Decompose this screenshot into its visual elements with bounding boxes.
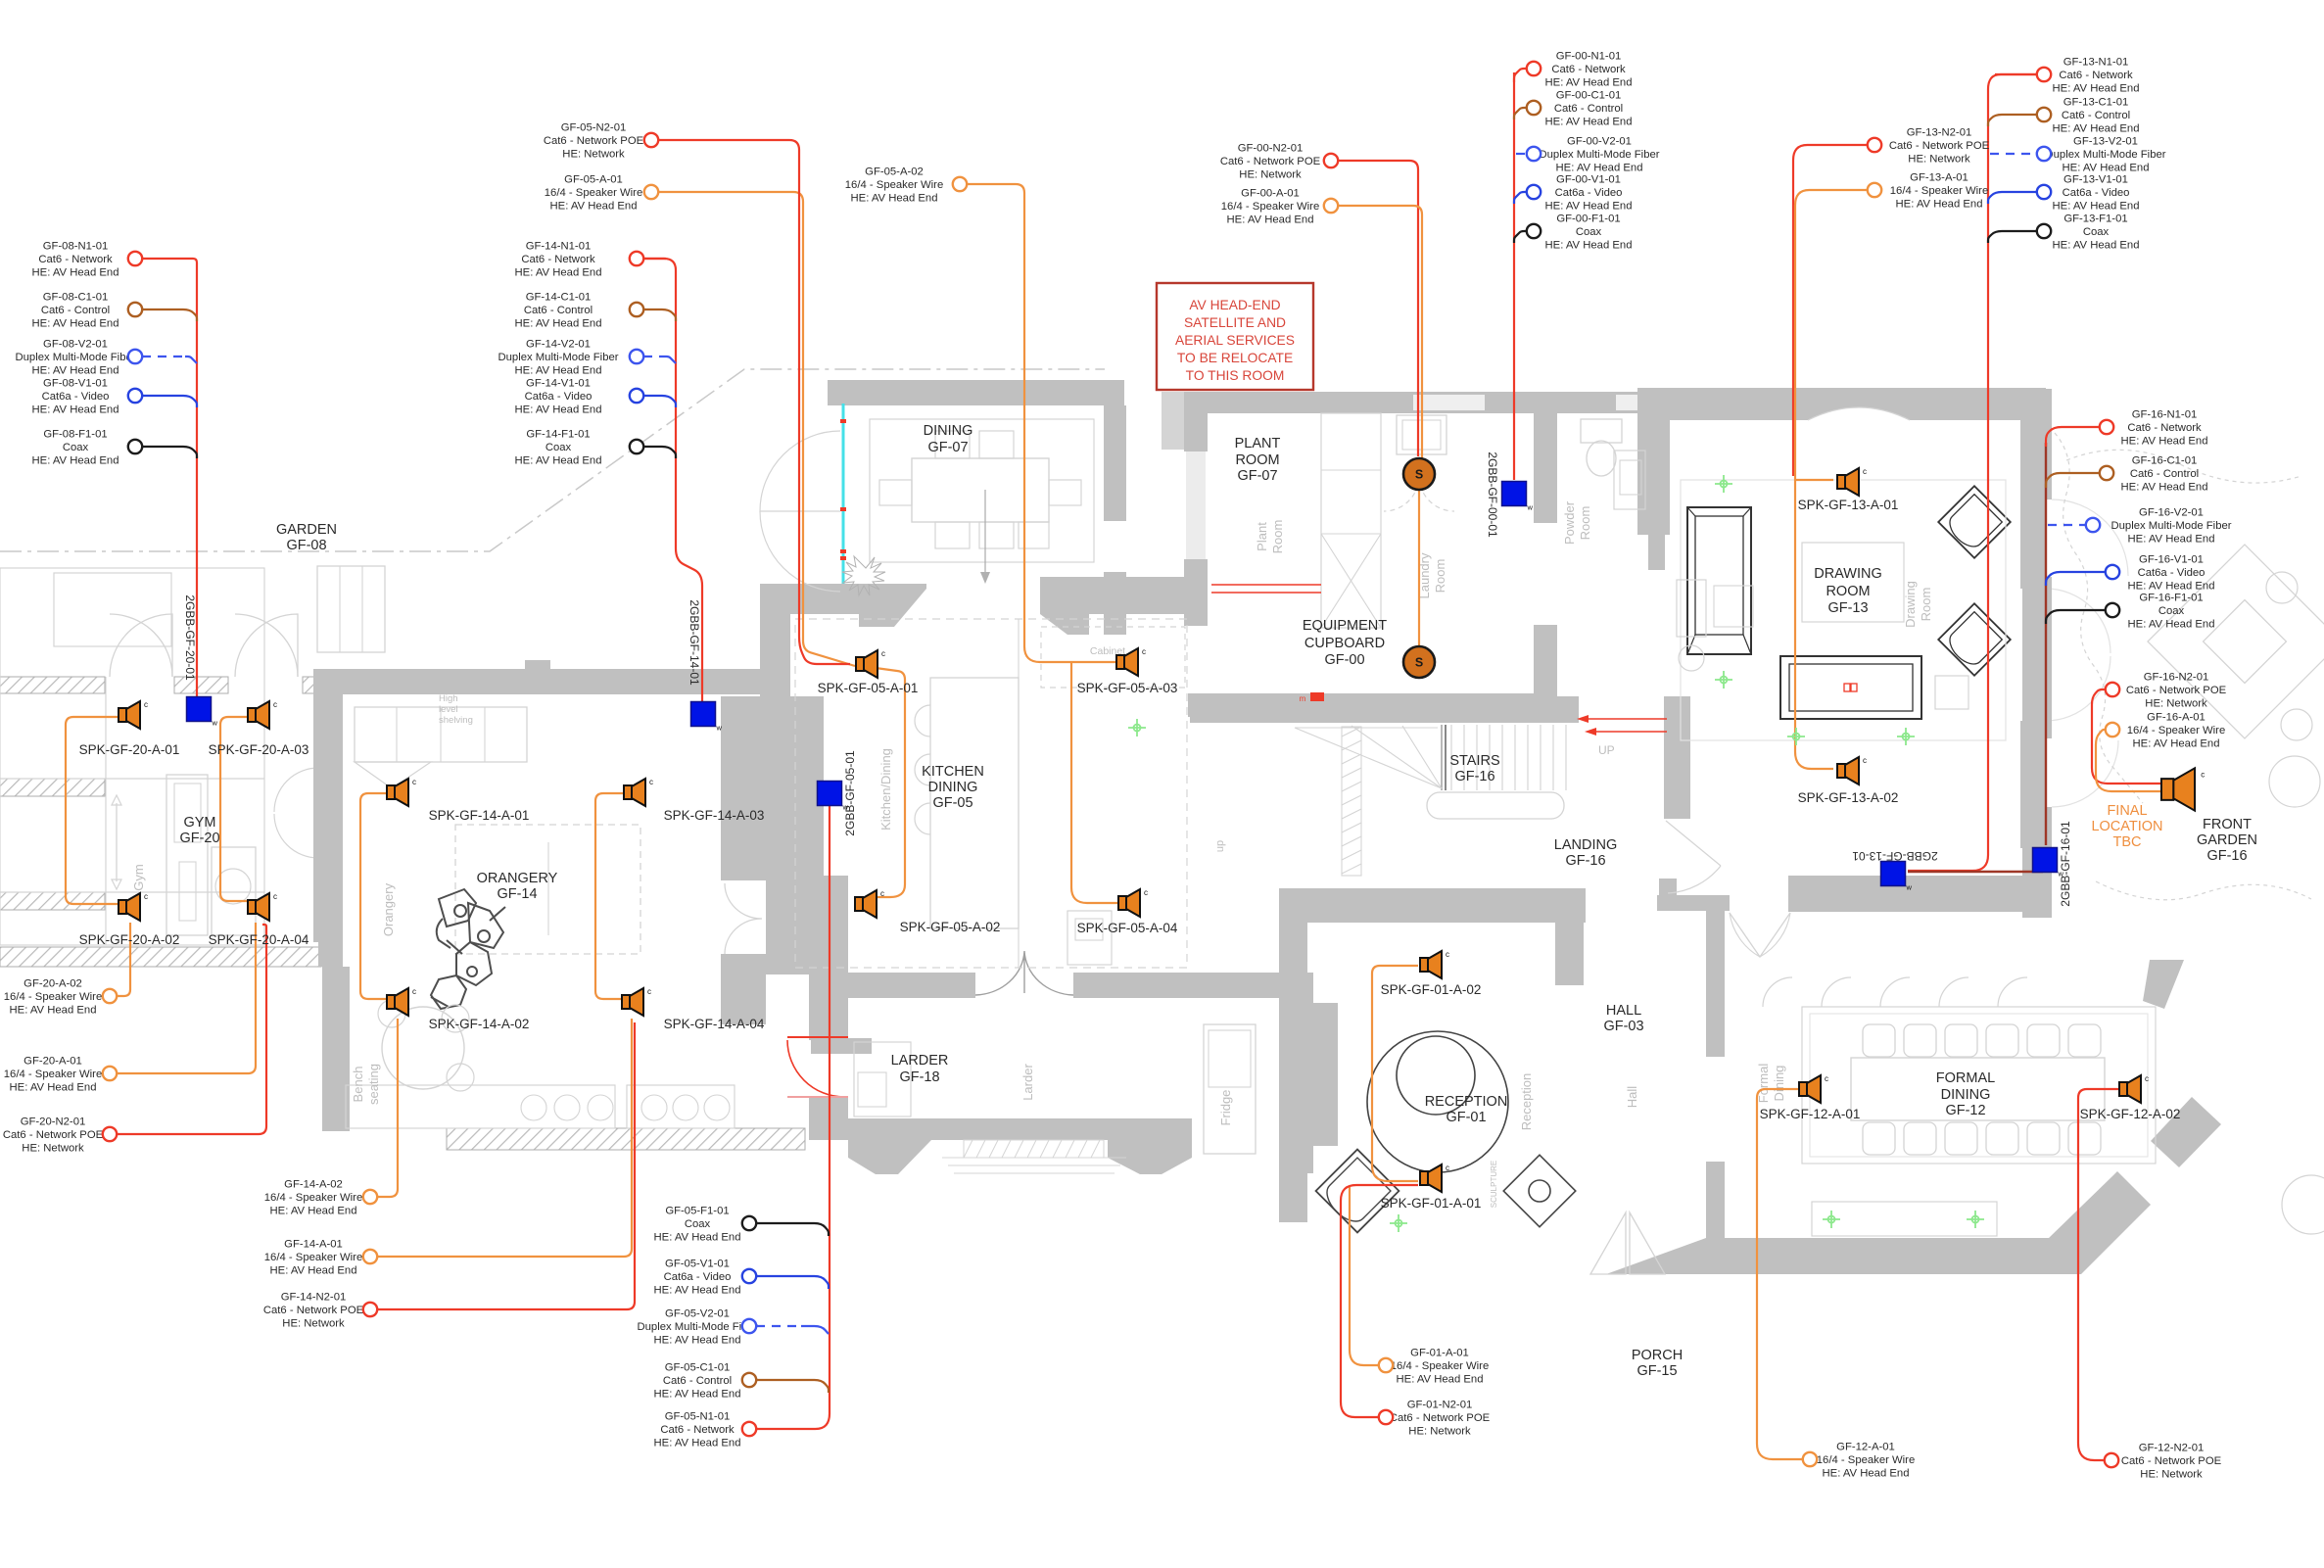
svg-text:GF-05-A-02: GF-05-A-02 — [865, 166, 924, 178]
svg-text:HE: Network: HE: Network — [2140, 1468, 2203, 1480]
svg-text:DRAWING: DRAWING — [1814, 566, 1882, 582]
svg-text:Cat6 - Control: Cat6 - Control — [524, 305, 593, 316]
svg-text:w: w — [1906, 883, 1913, 892]
svg-text:Cat6 - Network POE: Cat6 - Network POE — [1390, 1412, 1491, 1424]
svg-text:GF-16-N2-01: GF-16-N2-01 — [2144, 672, 2209, 684]
svg-text:HE: AV Head End: HE: AV Head End — [2053, 82, 2140, 94]
svg-text:Room: Room — [1578, 506, 1592, 541]
svg-text:Cat6 - Control: Cat6 - Control — [2062, 110, 2130, 121]
svg-text:GF-08-V2-01: GF-08-V2-01 — [43, 339, 108, 351]
svg-text:Cat6 - Network POE: Cat6 - Network POE — [1889, 140, 1990, 152]
svg-text:2GBB-GF-13-01: 2GBB-GF-13-01 — [1852, 849, 1938, 863]
svg-text:shelving: shelving — [439, 715, 473, 726]
svg-text:GF-15: GF-15 — [1636, 1363, 1677, 1379]
svg-text:2GBB-GF-00-01: 2GBB-GF-00-01 — [1486, 451, 1499, 538]
svg-text:c: c — [412, 987, 416, 996]
svg-text:Orangery: Orangery — [381, 882, 396, 936]
svg-text:Coax: Coax — [545, 442, 572, 453]
svg-text:EQUIPMENT: EQUIPMENT — [1303, 618, 1387, 634]
svg-text:GF-12-A-01: GF-12-A-01 — [1836, 1442, 1895, 1453]
svg-text:GF-16: GF-16 — [2206, 848, 2247, 864]
svg-text:Cat6a - Video: Cat6a - Video — [525, 391, 593, 403]
svg-text:HE: AV Head End: HE: AV Head End — [1545, 200, 1633, 212]
svg-text:HE: AV Head End: HE: AV Head End — [851, 192, 938, 204]
svg-text:Hall: Hall — [1625, 1086, 1639, 1109]
svg-text:GYM: GYM — [183, 815, 215, 831]
svg-text:GF-20: GF-20 — [179, 831, 219, 846]
svg-text:16/4 - Speaker Wire: 16/4 - Speaker Wire — [845, 179, 943, 191]
svg-text:HE: AV Head End: HE: AV Head End — [550, 200, 638, 212]
svg-text:HE: AV Head End: HE: AV Head End — [10, 1081, 97, 1093]
svg-text:HE: AV Head End: HE: AV Head End — [2053, 239, 2140, 251]
svg-text:c: c — [1446, 950, 1449, 959]
svg-text:ROOM: ROOM — [1235, 452, 1279, 468]
svg-text:Powder: Powder — [1562, 500, 1577, 545]
svg-text:m: m — [1300, 694, 1306, 703]
svg-text:Cat6 - Network: Cat6 - Network — [2059, 70, 2133, 81]
svg-text:HALL: HALL — [1606, 1003, 1641, 1019]
svg-text:HE: AV Head End: HE: AV Head End — [2128, 618, 2215, 630]
svg-text:DINING: DINING — [928, 780, 978, 795]
svg-text:Cat6 - Network POE: Cat6 - Network POE — [544, 135, 644, 147]
svg-text:c: c — [1446, 1164, 1449, 1172]
svg-text:TO BE RELOCATE: TO BE RELOCATE — [1177, 351, 1293, 365]
svg-text:c: c — [2201, 771, 2205, 780]
svg-text:HE: AV Head End: HE: AV Head End — [515, 317, 602, 329]
svg-text:GF-14-N2-01: GF-14-N2-01 — [281, 1292, 347, 1304]
svg-text:Cat6 - Network: Cat6 - Network — [521, 254, 595, 265]
svg-text:up: up — [1214, 840, 1226, 852]
svg-text:GF-08-F1-01: GF-08-F1-01 — [43, 429, 107, 441]
svg-text:SPK-GF-12-A-02: SPK-GF-12-A-02 — [2080, 1107, 2181, 1121]
svg-text:c: c — [880, 889, 884, 898]
svg-text:SPK-GF-05-A-01: SPK-GF-05-A-01 — [818, 681, 919, 695]
svg-text:GF-20-A-01: GF-20-A-01 — [24, 1056, 82, 1068]
svg-text:16/4 - Speaker Wire: 16/4 - Speaker Wire — [1391, 1360, 1489, 1372]
svg-text:SPK-GF-14-A-02: SPK-GF-14-A-02 — [429, 1017, 530, 1031]
svg-text:HE: AV Head End: HE: AV Head End — [32, 364, 119, 376]
svg-text:HE: AV Head End: HE: AV Head End — [515, 364, 602, 376]
svg-text:GF-16-V1-01: GF-16-V1-01 — [2139, 554, 2204, 566]
svg-text:Cat6 - Network POE: Cat6 - Network POE — [2126, 685, 2227, 696]
svg-text:GF-20-N2-01: GF-20-N2-01 — [21, 1117, 86, 1128]
svg-text:GF-00: GF-00 — [1324, 652, 1364, 668]
svg-text:c: c — [1142, 647, 1146, 656]
svg-text:GF-14-V2-01: GF-14-V2-01 — [526, 339, 591, 351]
svg-text:c: c — [1144, 888, 1148, 897]
svg-text:GF-14-N1-01: GF-14-N1-01 — [526, 241, 592, 253]
svg-text:HE: AV Head End: HE: AV Head End — [1556, 162, 1643, 173]
svg-text:SPK-GF-20-A-04: SPK-GF-20-A-04 — [209, 932, 309, 947]
svg-text:DINING: DINING — [924, 423, 973, 439]
svg-text:c: c — [1825, 1074, 1828, 1083]
svg-text:16/4 - Speaker Wire: 16/4 - Speaker Wire — [4, 991, 102, 1003]
svg-text:GF-16: GF-16 — [1565, 853, 1605, 869]
svg-text:GF-05: GF-05 — [932, 795, 972, 811]
svg-text:GF-13: GF-13 — [1827, 600, 1868, 616]
svg-text:GF-05-A-01: GF-05-A-01 — [564, 174, 623, 186]
svg-text:SPK-GF-12-A-01: SPK-GF-12-A-01 — [1760, 1107, 1861, 1121]
svg-text:Cat6a - Video: Cat6a - Video — [2138, 567, 2205, 579]
svg-text:c: c — [144, 700, 148, 709]
svg-text:PORCH: PORCH — [1632, 1348, 1683, 1363]
svg-text:GF-16-C1-01: GF-16-C1-01 — [2132, 455, 2198, 467]
svg-text:GF-14-A-01: GF-14-A-01 — [284, 1239, 343, 1251]
svg-text:SPK-GF-20-A-01: SPK-GF-20-A-01 — [79, 742, 180, 757]
svg-text:Kitchen/Dining: Kitchen/Dining — [878, 748, 893, 831]
svg-text:2GBB-GF-20-01: 2GBB-GF-20-01 — [183, 594, 197, 681]
svg-text:GF-14-A-02: GF-14-A-02 — [284, 1179, 343, 1191]
svg-text:Coax: Coax — [2158, 605, 2185, 617]
svg-text:HE: AV Head End: HE: AV Head End — [1545, 76, 1633, 88]
svg-text:GF-13-N2-01: GF-13-N2-01 — [1907, 127, 1972, 139]
svg-text:HE: AV Head End: HE: AV Head End — [32, 454, 119, 466]
svg-text:GF-18: GF-18 — [899, 1069, 939, 1085]
svg-text:GF-12-N2-01: GF-12-N2-01 — [2139, 1443, 2205, 1454]
svg-text:16/4 - Speaker Wire: 16/4 - Speaker Wire — [1890, 185, 1988, 197]
svg-text:w: w — [716, 724, 723, 733]
svg-text:SPK-GF-14-A-03: SPK-GF-14-A-03 — [664, 808, 765, 823]
svg-text:FORMAL: FORMAL — [1936, 1070, 1995, 1086]
svg-text:GF-01-N2-01: GF-01-N2-01 — [1407, 1400, 1473, 1411]
svg-text:High: High — [439, 693, 458, 704]
svg-text:GF-16-V2-01: GF-16-V2-01 — [2139, 507, 2204, 519]
svg-text:HE: Network: HE: Network — [1408, 1425, 1471, 1437]
svg-text:c: c — [273, 892, 277, 901]
svg-text:AERIAL SERVICES: AERIAL SERVICES — [1175, 333, 1295, 348]
svg-text:Drawing: Drawing — [1903, 581, 1918, 628]
svg-text:2GBB-GF-14-01: 2GBB-GF-14-01 — [688, 599, 701, 686]
svg-text:Larder: Larder — [1020, 1064, 1035, 1101]
svg-text:GF-08-V1-01: GF-08-V1-01 — [43, 378, 108, 390]
svg-text:GF-00-F1-01: GF-00-F1-01 — [1556, 214, 1620, 225]
svg-text:ORANGERY: ORANGERY — [477, 871, 558, 886]
svg-text:Cat6 - Control: Cat6 - Control — [1554, 103, 1623, 115]
svg-text:HE: AV Head End: HE: AV Head End — [654, 1437, 741, 1449]
svg-text:SPK-GF-20-A-02: SPK-GF-20-A-02 — [79, 932, 180, 947]
svg-text:HE: AV Head End: HE: AV Head End — [270, 1264, 357, 1276]
svg-text:c: c — [273, 700, 277, 709]
svg-text:Reception: Reception — [1519, 1073, 1534, 1131]
svg-text:Duplex Multi-Mode Fiber: Duplex Multi-Mode Fiber — [2045, 149, 2165, 161]
svg-text:LOCATION: LOCATION — [2091, 819, 2162, 834]
svg-text:PLANT: PLANT — [1235, 436, 1281, 451]
svg-text:Cat6a - Video: Cat6a - Video — [1555, 187, 1623, 199]
svg-text:GF-16: GF-16 — [1454, 769, 1494, 784]
svg-text:Coax: Coax — [685, 1218, 711, 1230]
svg-text:GARDEN: GARDEN — [2197, 832, 2257, 848]
svg-text:GF-00-C1-01: GF-00-C1-01 — [1556, 90, 1622, 102]
svg-text:GF-13-V2-01: GF-13-V2-01 — [2073, 136, 2138, 148]
svg-text:FRONT: FRONT — [2203, 817, 2252, 832]
svg-text:AV HEAD-END: AV HEAD-END — [1189, 298, 1280, 312]
svg-text:GF-08-N1-01: GF-08-N1-01 — [43, 241, 109, 253]
svg-text:HE: Network: HE: Network — [282, 1317, 345, 1329]
svg-text:ROOM: ROOM — [1826, 584, 1870, 599]
svg-text:Bench: Bench — [351, 1067, 365, 1103]
svg-text:GF-05-V2-01: GF-05-V2-01 — [665, 1308, 730, 1320]
svg-text:SPK-GF-14-A-04: SPK-GF-14-A-04 — [664, 1017, 765, 1031]
svg-text:GF-13-V1-01: GF-13-V1-01 — [2063, 174, 2128, 186]
svg-text:GF-00-A-01: GF-00-A-01 — [1241, 188, 1300, 200]
svg-text:Cat6 - Network POE: Cat6 - Network POE — [3, 1129, 104, 1141]
svg-text:HE: AV Head End: HE: AV Head End — [515, 266, 602, 278]
svg-text:HE: AV Head End: HE: AV Head End — [654, 1334, 741, 1346]
svg-text:Duplex Multi-Mode Fiber: Duplex Multi-Mode Fiber — [15, 352, 135, 363]
svg-text:HE: AV Head End: HE: AV Head End — [2121, 481, 2208, 493]
svg-text:GF-08: GF-08 — [286, 538, 326, 553]
svg-text:GARDEN: GARDEN — [276, 522, 337, 538]
svg-text:HE: AV Head End: HE: AV Head End — [654, 1284, 741, 1296]
svg-text:TO THIS ROOM: TO THIS ROOM — [1186, 368, 1285, 383]
svg-text:Room: Room — [1919, 588, 1933, 622]
svg-text:16/4 - Speaker Wire: 16/4 - Speaker Wire — [2127, 725, 2225, 736]
svg-text:Cat6a - Video: Cat6a - Video — [42, 391, 110, 403]
svg-text:16/4 - Speaker Wire: 16/4 - Speaker Wire — [4, 1069, 102, 1080]
svg-text:GF-00-N1-01: GF-00-N1-01 — [1556, 51, 1622, 63]
svg-text:16/4 - Speaker Wire: 16/4 - Speaker Wire — [545, 187, 642, 199]
svg-text:CUPBOARD: CUPBOARD — [1304, 636, 1385, 651]
svg-text:Cat6a - Video: Cat6a - Video — [2063, 187, 2130, 199]
svg-text:SPK-GF-05-A-02: SPK-GF-05-A-02 — [900, 920, 1001, 934]
svg-text:HE: AV Head End: HE: AV Head End — [1545, 239, 1633, 251]
svg-text:HE: AV Head End: HE: AV Head End — [2128, 580, 2215, 592]
svg-text:2GBB-GF-16-01: 2GBB-GF-16-01 — [2059, 821, 2072, 907]
svg-text:GF-01-A-01: GF-01-A-01 — [1410, 1348, 1469, 1359]
svg-text:HE: AV Head End: HE: AV Head End — [1545, 116, 1633, 127]
svg-text:HE: AV Head End: HE: AV Head End — [270, 1205, 357, 1216]
svg-text:c: c — [649, 778, 653, 786]
svg-text:GF-01: GF-01 — [1446, 1110, 1486, 1125]
svg-text:SATELLITE AND: SATELLITE AND — [1184, 315, 1286, 330]
svg-text:Coax: Coax — [63, 442, 89, 453]
svg-text:seating: seating — [366, 1064, 381, 1105]
svg-text:GF-13-C1-01: GF-13-C1-01 — [2063, 97, 2129, 109]
svg-text:HE: Network: HE: Network — [1239, 168, 1302, 180]
svg-text:HE: AV Head End: HE: AV Head End — [2121, 435, 2208, 447]
svg-text:HE: AV Head End: HE: AV Head End — [1397, 1373, 1484, 1385]
svg-text:GF-05-C1-01: GF-05-C1-01 — [665, 1362, 731, 1374]
svg-text:HE: AV Head End: HE: AV Head End — [1823, 1467, 1910, 1479]
svg-text:HE: Network: HE: Network — [2145, 697, 2207, 709]
svg-text:Formal: Formal — [1756, 1064, 1771, 1104]
svg-text:Duplex Multi-Mode Fiber: Duplex Multi-Mode Fiber — [1539, 149, 1659, 161]
svg-text:HE: AV Head End: HE: AV Head End — [515, 454, 602, 466]
svg-text:HE: AV Head End: HE: AV Head End — [32, 266, 119, 278]
svg-text:SPK-GF-14-A-01: SPK-GF-14-A-01 — [429, 808, 530, 823]
svg-text:c: c — [647, 987, 651, 996]
svg-text:GF-20-A-02: GF-20-A-02 — [24, 978, 82, 990]
svg-text:STAIRS: STAIRS — [1449, 753, 1499, 769]
svg-text:c: c — [2145, 1074, 2149, 1083]
svg-text:HE: Network: HE: Network — [562, 148, 625, 160]
svg-text:SPK-GF-01-A-01: SPK-GF-01-A-01 — [1381, 1196, 1482, 1211]
svg-text:GF-05-N2-01: GF-05-N2-01 — [561, 122, 627, 134]
svg-text:HE: AV Head End: HE: AV Head End — [2133, 737, 2220, 749]
svg-text:c: c — [881, 649, 885, 658]
svg-text:Cat6 - Control: Cat6 - Control — [2130, 468, 2199, 480]
svg-text:GF-14-F1-01: GF-14-F1-01 — [526, 429, 590, 441]
svg-text:GF-08-C1-01: GF-08-C1-01 — [43, 292, 109, 304]
svg-text:Cat6 - Network: Cat6 - Network — [38, 254, 113, 265]
svg-text:HE: AV Head End: HE: AV Head End — [1896, 198, 1983, 210]
svg-text:2GBB-GF-05-01: 2GBB-GF-05-01 — [843, 750, 857, 836]
svg-text:Room: Room — [1270, 520, 1285, 554]
svg-text:LARDER: LARDER — [891, 1053, 949, 1069]
svg-text:HE: AV Head End: HE: AV Head End — [654, 1231, 741, 1243]
svg-text:HE: Network: HE: Network — [1908, 153, 1970, 165]
svg-text:Coax: Coax — [1576, 226, 1602, 238]
svg-text:GF-05-F1-01: GF-05-F1-01 — [665, 1206, 729, 1217]
svg-text:c: c — [1863, 756, 1867, 765]
svg-text:SPK-GF-05-A-03: SPK-GF-05-A-03 — [1077, 681, 1178, 695]
svg-text:S: S — [1415, 468, 1423, 482]
svg-text:w: w — [212, 719, 218, 728]
svg-text:Cat6 - Control: Cat6 - Control — [41, 305, 110, 316]
svg-text:Cat6a - Video: Cat6a - Video — [664, 1271, 732, 1283]
svg-text:HE: Network: HE: Network — [22, 1142, 84, 1154]
svg-text:c: c — [1863, 467, 1867, 476]
svg-text:S: S — [1415, 656, 1423, 670]
svg-text:GF-14-V1-01: GF-14-V1-01 — [526, 378, 591, 390]
svg-text:SPK-GF-13-A-02: SPK-GF-13-A-02 — [1798, 790, 1899, 805]
svg-text:Cat6 - Network: Cat6 - Network — [1551, 64, 1626, 75]
svg-text:level: level — [439, 704, 458, 715]
svg-text:16/4 - Speaker Wire: 16/4 - Speaker Wire — [264, 1192, 362, 1204]
svg-text:FINAL: FINAL — [2107, 803, 2147, 819]
svg-text:16/4 - Speaker Wire: 16/4 - Speaker Wire — [1221, 201, 1319, 213]
svg-text:HE: AV Head End: HE: AV Head End — [2063, 162, 2150, 173]
svg-text:16/4 - Speaker Wire: 16/4 - Speaker Wire — [264, 1252, 362, 1263]
svg-text:GF-03: GF-03 — [1603, 1019, 1643, 1034]
svg-text:HE: AV Head End: HE: AV Head End — [515, 404, 602, 415]
svg-text:Room: Room — [1433, 559, 1447, 594]
svg-text:Fridge: Fridge — [1218, 1090, 1233, 1126]
svg-text:GF-07: GF-07 — [927, 440, 968, 455]
svg-text:HE: AV Head End: HE: AV Head End — [2128, 533, 2215, 545]
svg-text:GF-14-C1-01: GF-14-C1-01 — [526, 292, 592, 304]
svg-text:DINING: DINING — [1941, 1087, 1991, 1103]
svg-text:GF-13-N1-01: GF-13-N1-01 — [2063, 57, 2129, 69]
svg-text:GF-05-N1-01: GF-05-N1-01 — [665, 1411, 731, 1423]
svg-text:GF-00-N2-01: GF-00-N2-01 — [1238, 143, 1304, 155]
svg-text:GF-13-A-01: GF-13-A-01 — [1910, 172, 1968, 184]
svg-text:GF-00-V1-01: GF-00-V1-01 — [1556, 174, 1621, 186]
svg-text:Cat6 - Network: Cat6 - Network — [2127, 422, 2202, 434]
svg-text:16/4 - Speaker Wire: 16/4 - Speaker Wire — [1817, 1454, 1915, 1466]
svg-text:GF-07: GF-07 — [1237, 468, 1277, 484]
svg-text:HE: AV Head End: HE: AV Head End — [10, 1004, 97, 1016]
svg-text:Cat6 - Network POE: Cat6 - Network POE — [2121, 1455, 2222, 1467]
svg-text:GF-00-V2-01: GF-00-V2-01 — [1567, 136, 1632, 148]
svg-text:HE: AV Head End: HE: AV Head End — [32, 317, 119, 329]
svg-text:KITCHEN: KITCHEN — [922, 764, 984, 780]
svg-text:Cat6 - Control: Cat6 - Control — [663, 1375, 732, 1387]
svg-text:w: w — [1527, 503, 1534, 512]
svg-text:Cat6 - Network: Cat6 - Network — [660, 1424, 735, 1436]
svg-text:SPK-GF-13-A-01: SPK-GF-13-A-01 — [1798, 498, 1899, 512]
svg-text:HE: AV Head End: HE: AV Head End — [32, 404, 119, 415]
svg-text:Cat6 - Network POE: Cat6 - Network POE — [263, 1305, 364, 1316]
svg-text:GF-05-V1-01: GF-05-V1-01 — [665, 1259, 730, 1270]
svg-text:HE: AV Head End: HE: AV Head End — [2053, 200, 2140, 212]
svg-text:GF-14: GF-14 — [497, 886, 537, 902]
svg-text:Gym: Gym — [131, 864, 146, 890]
svg-text:HE: AV Head End: HE: AV Head End — [2053, 122, 2140, 134]
svg-text:c: c — [412, 778, 416, 786]
svg-text:Dining: Dining — [1772, 1066, 1786, 1102]
svg-text:SPK-GF-05-A-04: SPK-GF-05-A-04 — [1077, 921, 1178, 935]
svg-text:TBC: TBC — [2113, 834, 2142, 850]
svg-text:Duplex Multi-Mode Fiber: Duplex Multi-Mode Fiber — [498, 352, 618, 363]
svg-text:c: c — [144, 892, 148, 901]
svg-text:GF-16-A-01: GF-16-A-01 — [2147, 712, 2205, 724]
svg-text:SCULPTURE: SCULPTURE — [1490, 1161, 1498, 1208]
svg-text:HE: AV Head End: HE: AV Head End — [654, 1388, 741, 1400]
svg-text:Duplex Multi-Mode Fiber: Duplex Multi-Mode Fiber — [2111, 520, 2231, 532]
svg-text:GF-12: GF-12 — [1945, 1103, 1985, 1118]
svg-text:Coax: Coax — [2083, 226, 2110, 238]
svg-text:GF-16-F1-01: GF-16-F1-01 — [2139, 593, 2203, 604]
svg-text:LANDING: LANDING — [1554, 837, 1617, 853]
svg-text:GF-13-F1-01: GF-13-F1-01 — [2063, 214, 2127, 225]
svg-text:GF-16-N1-01: GF-16-N1-01 — [2132, 409, 2198, 421]
svg-text:SPK-GF-20-A-03: SPK-GF-20-A-03 — [209, 742, 309, 757]
svg-text:UP: UP — [1598, 743, 1615, 757]
svg-text:SPK-GF-01-A-02: SPK-GF-01-A-02 — [1381, 982, 1482, 997]
svg-text:Plant: Plant — [1255, 522, 1269, 551]
svg-text:HE: AV Head End: HE: AV Head End — [1227, 214, 1314, 225]
svg-text:Duplex Multi-Mode Fiber: Duplex Multi-Mode Fiber — [637, 1321, 757, 1333]
svg-text:Cat6 - Network POE: Cat6 - Network POE — [1220, 156, 1321, 167]
svg-text:RECEPTION: RECEPTION — [1425, 1094, 1508, 1110]
